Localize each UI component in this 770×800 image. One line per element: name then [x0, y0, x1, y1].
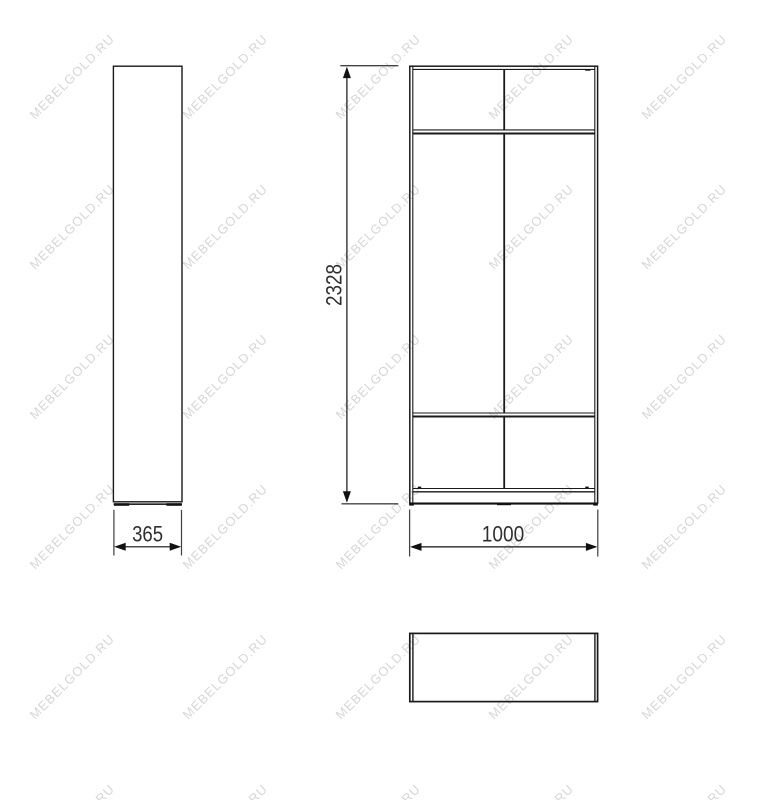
svg-text:MEBELGOLD.RU: MEBELGOLD.RU — [180, 331, 271, 422]
svg-text:MEBELGOLD.RU: MEBELGOLD.RU — [486, 181, 577, 272]
svg-text:365: 365 — [132, 522, 163, 547]
svg-text:2328: 2328 — [321, 264, 346, 306]
svg-text:MEBELGOLD.RU: MEBELGOLD.RU — [180, 781, 271, 800]
svg-text:MEBELGOLD.RU: MEBELGOLD.RU — [486, 31, 577, 122]
svg-text:MEBELGOLD.RU: MEBELGOLD.RU — [639, 31, 730, 122]
svg-text:MEBELGOLD.RU: MEBELGOLD.RU — [180, 631, 271, 722]
svg-text:MEBELGOLD.RU: MEBELGOLD.RU — [639, 481, 730, 572]
svg-text:MEBELGOLD.RU: MEBELGOLD.RU — [27, 781, 118, 800]
svg-text:MEBELGOLD.RU: MEBELGOLD.RU — [180, 31, 271, 122]
svg-text:MEBELGOLD.RU: MEBELGOLD.RU — [639, 181, 730, 272]
svg-text:MEBELGOLD.RU: MEBELGOLD.RU — [486, 331, 577, 422]
svg-text:MEBELGOLD.RU: MEBELGOLD.RU — [27, 481, 118, 572]
svg-text:MEBELGOLD.RU: MEBELGOLD.RU — [333, 781, 424, 800]
svg-text:MEBELGOLD.RU: MEBELGOLD.RU — [27, 331, 118, 422]
svg-text:1000: 1000 — [482, 522, 525, 547]
svg-text:MEBELGOLD.RU: MEBELGOLD.RU — [639, 781, 730, 800]
svg-text:MEBELGOLD.RU: MEBELGOLD.RU — [27, 631, 118, 722]
svg-text:MEBELGOLD.RU: MEBELGOLD.RU — [486, 781, 577, 800]
svg-text:MEBELGOLD.RU: MEBELGOLD.RU — [180, 181, 271, 272]
svg-text:MEBELGOLD.RU: MEBELGOLD.RU — [27, 31, 118, 122]
svg-text:MEBELGOLD.RU: MEBELGOLD.RU — [486, 631, 577, 722]
svg-text:MEBELGOLD.RU: MEBELGOLD.RU — [180, 481, 271, 572]
svg-text:MEBELGOLD.RU: MEBELGOLD.RU — [639, 631, 730, 722]
svg-text:MEBELGOLD.RU: MEBELGOLD.RU — [639, 331, 730, 422]
svg-text:MEBELGOLD.RU: MEBELGOLD.RU — [27, 181, 118, 272]
